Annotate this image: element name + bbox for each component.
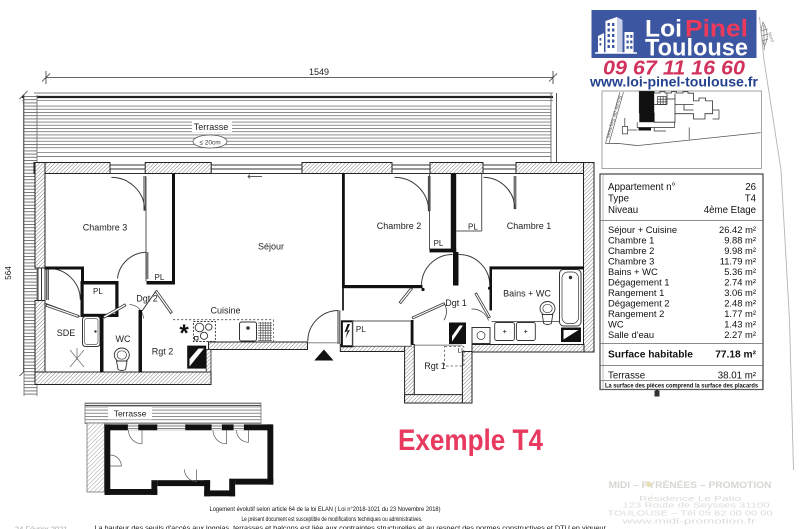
svg-text:1.43 m²: 1.43 m² xyxy=(724,319,756,330)
svg-text:11.79 m²: 11.79 m² xyxy=(720,256,756,267)
svg-text:≤ 20cm: ≤ 20cm xyxy=(199,140,220,147)
svg-text:Séjour: Séjour xyxy=(258,242,284,252)
svg-text:Appartement n°: Appartement n° xyxy=(608,182,676,193)
svg-text:Rgt 2: Rgt 2 xyxy=(152,347,174,357)
svg-text:*: * xyxy=(179,320,189,347)
svg-text:Terrasse: Terrasse xyxy=(608,371,645,382)
svg-text:PL: PL xyxy=(93,287,103,296)
svg-text:La surface des pièces comprend: La surface des pièces comprend la surfac… xyxy=(605,383,758,390)
svg-text:77.18 m²: 77.18 m² xyxy=(715,350,756,361)
svg-text:WC: WC xyxy=(608,319,624,330)
svg-text:Surface habitable: Surface habitable xyxy=(608,350,693,361)
svg-text:Dégagement 1: Dégagement 1 xyxy=(608,277,670,288)
svg-text:Rgt 1: Rgt 1 xyxy=(424,361,446,371)
svg-text:38.01 m²: 38.01 m² xyxy=(718,371,757,382)
svg-text:564: 564 xyxy=(4,266,13,280)
svg-text:Terrasse: Terrasse xyxy=(114,409,147,419)
svg-text:PL: PL xyxy=(155,273,165,282)
svg-text:Terrasse: Terrasse xyxy=(194,122,229,132)
svg-text:MIDI – PYRÉNÉES – PROMOTION: MIDI – PYRÉNÉES – PROMOTION xyxy=(609,480,772,490)
svg-text:1549: 1549 xyxy=(309,67,329,77)
svg-text:Chambre 3: Chambre 3 xyxy=(608,256,654,267)
svg-text:T4: T4 xyxy=(745,194,757,205)
svg-text:WC: WC xyxy=(116,334,131,344)
svg-text:www.midi-promotion.fr: www.midi-promotion.fr xyxy=(621,517,757,526)
svg-text:26.42 m²: 26.42 m² xyxy=(719,224,756,235)
svg-text:PL: PL xyxy=(468,223,478,232)
svg-text:Dégagement 2: Dégagement 2 xyxy=(608,298,670,309)
svg-text:Salle d'eau: Salle d'eau xyxy=(608,329,654,340)
svg-text:Bains + WC: Bains + WC xyxy=(608,266,658,277)
svg-text:Logement évolutif selon articl: Logement évolutif selon article 64 de la… xyxy=(210,507,441,513)
svg-text:LL: LL xyxy=(458,348,466,355)
svg-text:Exemple T4: Exemple T4 xyxy=(398,424,543,457)
svg-text:Cuisine: Cuisine xyxy=(210,306,240,316)
svg-text:2.48 m²: 2.48 m² xyxy=(724,298,756,309)
svg-text:9.88 m²: 9.88 m² xyxy=(724,235,756,246)
svg-text:Rangement 1: Rangement 1 xyxy=(608,287,664,298)
svg-text:3.06 m²: 3.06 m² xyxy=(724,287,756,298)
svg-text:Chambre 2: Chambre 2 xyxy=(377,221,422,231)
svg-text:4ème Etage: 4ème Etage xyxy=(704,205,756,216)
svg-text:PL: PL xyxy=(434,239,444,248)
svg-text:9.98 m²: 9.98 m² xyxy=(724,245,756,256)
svg-text:Chambre 3: Chambre 3 xyxy=(83,223,128,233)
svg-text:Chambre 1: Chambre 1 xyxy=(608,235,654,246)
svg-text:Nord: Nord xyxy=(767,32,775,43)
svg-text:2.27 m²: 2.27 m² xyxy=(724,329,756,340)
svg-text:1.77 m²: 1.77 m² xyxy=(724,308,756,319)
svg-text:Niveau: Niveau xyxy=(608,205,638,216)
svg-text:www.loi-pinel-toulouse.fr: www.loi-pinel-toulouse.fr xyxy=(589,74,759,90)
svg-text:Dgt 2: Dgt 2 xyxy=(136,294,158,304)
svg-text:PL: PL xyxy=(356,325,366,334)
svg-text:Type: Type xyxy=(608,194,629,205)
svg-text:5.36 m²: 5.36 m² xyxy=(724,266,756,277)
svg-text:Chambre 2: Chambre 2 xyxy=(608,245,654,256)
svg-text:Le présent document est suscep: Le présent document est susceptible de m… xyxy=(242,517,423,523)
svg-text:2.74 m²: 2.74 m² xyxy=(724,277,756,288)
svg-text:Séjour + Cuisine: Séjour + Cuisine xyxy=(608,224,677,235)
svg-text:24 Février 2021: 24 Février 2021 xyxy=(15,525,68,529)
svg-text:Chambre 1: Chambre 1 xyxy=(507,221,552,231)
svg-text:26: 26 xyxy=(745,182,756,193)
svg-text:Rangement 2: Rangement 2 xyxy=(608,308,664,319)
svg-text:La hauteur des seuils d'accès: La hauteur des seuils d'accès aux loggia… xyxy=(95,525,608,529)
svg-text:Dgt 1: Dgt 1 xyxy=(445,298,467,308)
svg-text:SDE: SDE xyxy=(57,328,76,338)
svg-text:Bains + WC: Bains + WC xyxy=(503,289,551,299)
